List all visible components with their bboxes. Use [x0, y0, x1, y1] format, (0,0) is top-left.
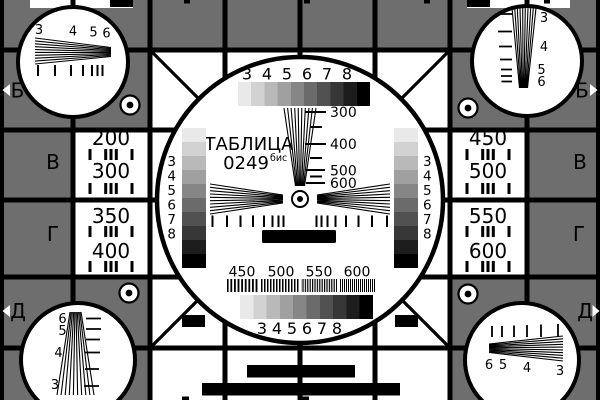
gray-label: 4 — [262, 65, 272, 84]
right-black-square — [395, 315, 418, 327]
target-icon-top-left — [121, 96, 140, 115]
wedge-number: 4 — [54, 346, 62, 361]
edge-strip-left — [0, 0, 4, 400]
wedge-number: 3 — [540, 11, 548, 26]
grayscale-bar-right — [394, 128, 418, 268]
grayscale-bar-left — [182, 128, 206, 268]
target-icon-bottom-right — [459, 285, 478, 304]
gray-label: 5 — [287, 319, 297, 338]
gray-label: 3 — [242, 65, 252, 84]
row-label-left-b: Б — [11, 79, 25, 103]
row-label-right-d: Д — [577, 299, 593, 323]
wedge-number: 6 — [102, 27, 110, 42]
tv-test-card: 3 4 5 6 3 4 5 6 6 5 4 3 6 5 4 3 3 4 5 6 … — [0, 0, 600, 400]
wedge-scale-label: 400 — [330, 137, 357, 153]
burst-band-600 — [339, 279, 375, 292]
row-label-right-g: Г — [573, 222, 585, 246]
burst-band-550 — [301, 279, 337, 292]
gray-label: 5 — [282, 65, 292, 84]
center-bullseye-icon — [292, 191, 308, 207]
wedge-number: 5 — [58, 324, 66, 339]
grayscale-bar-top — [238, 82, 370, 106]
burst-label: 450 — [229, 265, 256, 281]
gray-label: 6 — [302, 65, 312, 84]
gray-label: 7 — [322, 65, 332, 84]
gray-label: 4 — [272, 319, 282, 338]
burst-label: 550 — [306, 265, 333, 281]
gray-label: 6 — [302, 319, 312, 338]
gray-label: 7 — [317, 319, 327, 338]
top-right-cut-bar — [467, 0, 490, 7]
needle-pulse-bar — [262, 230, 336, 243]
wedge-number: 3 — [35, 23, 43, 38]
frequency-value: 550 — [469, 204, 507, 228]
frequency-value: 400 — [92, 239, 130, 263]
burst-label: 600 — [344, 265, 371, 281]
wedge-number: 3 — [51, 378, 59, 393]
row-label-right-b: Б — [575, 79, 589, 103]
frequency-value: 500 — [469, 159, 507, 183]
wedge-number: 4 — [523, 361, 531, 376]
wedge-number: 4 — [540, 40, 548, 55]
wedge-number: 4 — [69, 25, 77, 40]
gray-label: 8 — [423, 227, 432, 243]
wedge-number: 5 — [89, 26, 97, 41]
row-label-right-v: В — [573, 150, 587, 174]
row-label-left-d: Д — [10, 299, 26, 323]
frequency-value: 300 — [92, 159, 130, 183]
card-title: ТАБЛИЦА — [204, 134, 295, 155]
frequency-value: 350 — [92, 204, 130, 228]
gray-label: 8 — [332, 319, 342, 338]
card-code: 0249 — [223, 153, 269, 174]
frequency-value: 450 — [469, 126, 507, 150]
burst-band-500 — [260, 279, 299, 292]
gray-label: 3 — [257, 319, 267, 338]
gray-label: 8 — [167, 227, 176, 243]
target-icon-top-right — [459, 99, 478, 118]
edge-strip-right — [596, 0, 600, 400]
wedge-number: 5 — [499, 358, 507, 373]
bottom-long-bar — [202, 383, 400, 396]
wedge-number: 3 — [556, 364, 564, 379]
frequency-value: 600 — [469, 239, 507, 263]
top-left-cut-bar — [110, 0, 133, 7]
left-black-square — [182, 315, 205, 327]
grayscale-bar-bottom — [240, 295, 373, 319]
wedge-scale-label: 300 — [330, 105, 357, 121]
gray-label: 8 — [342, 65, 352, 84]
row-label-left-g: Г — [47, 222, 59, 246]
burst-band-450 — [227, 279, 258, 292]
card-code-suffix: бис — [270, 153, 287, 164]
wedge-number: 6 — [485, 358, 493, 373]
test-card-svg: 3 4 5 6 3 4 5 6 6 5 4 3 6 5 4 3 3 4 5 6 … — [0, 0, 600, 400]
frequency-value: 200 — [92, 126, 130, 150]
wedge-number: 6 — [537, 75, 545, 90]
row-label-left-v: В — [46, 150, 60, 174]
bottom-short-bar — [247, 365, 355, 378]
target-icon-bottom-left — [120, 284, 139, 303]
burst-label: 500 — [268, 265, 295, 281]
